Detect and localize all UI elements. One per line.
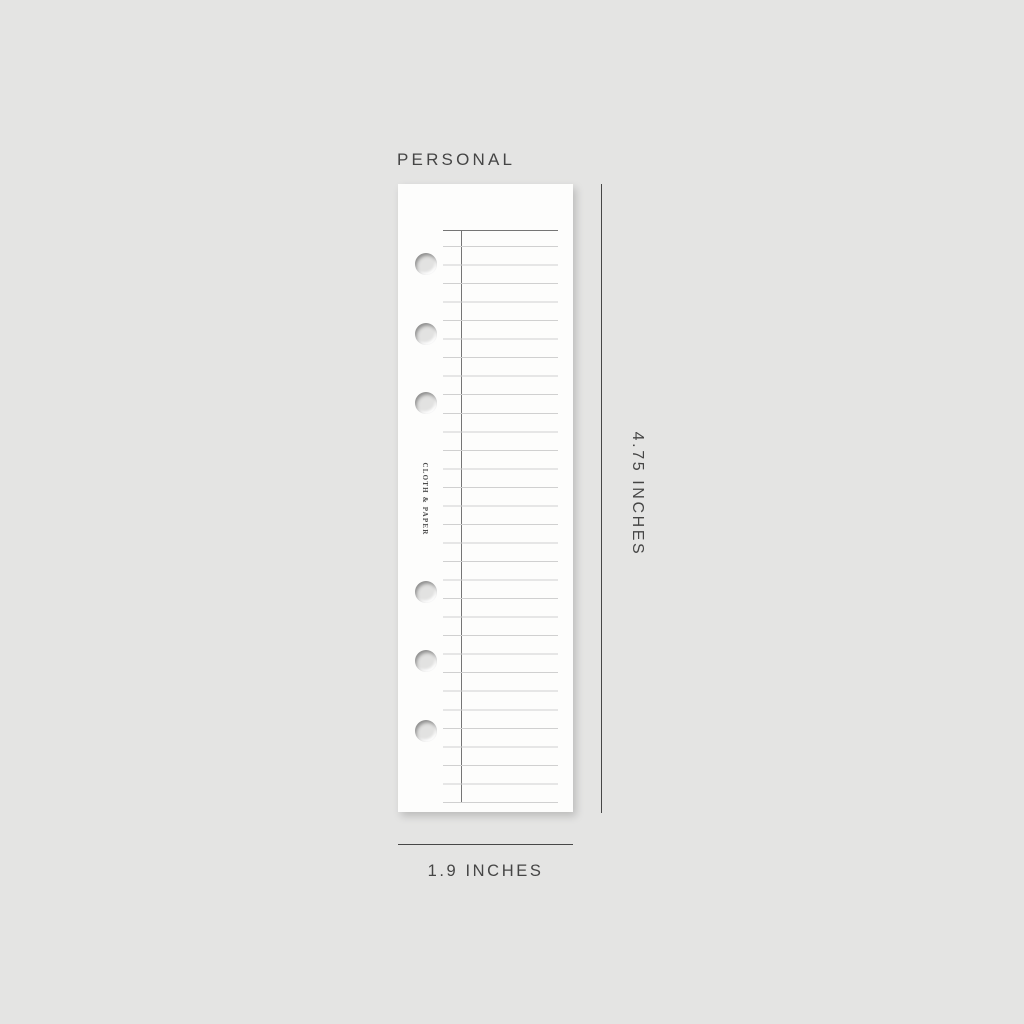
planner-insert-page: CLOTH & PAPER [398,184,573,812]
height-dimension-label: 4.75 INCHES [628,432,646,557]
height-dimension-line [601,184,602,813]
punch-hole [415,720,437,742]
brand-text: CLOTH & PAPER [421,462,429,535]
punch-hole [415,650,437,672]
width-dimension-label: 1.9 INCHES [373,862,598,881]
width-dimension-line [398,844,573,845]
punch-hole [415,253,437,275]
mockup-canvas: PERSONAL CLOTH & PAPER 4.75 INCHES 1.9 I… [0,0,1024,1024]
size-name-label: PERSONAL [397,150,515,170]
ruled-lines [443,246,558,804]
punch-hole [415,581,437,603]
punch-hole [415,392,437,414]
punch-hole [415,323,437,345]
